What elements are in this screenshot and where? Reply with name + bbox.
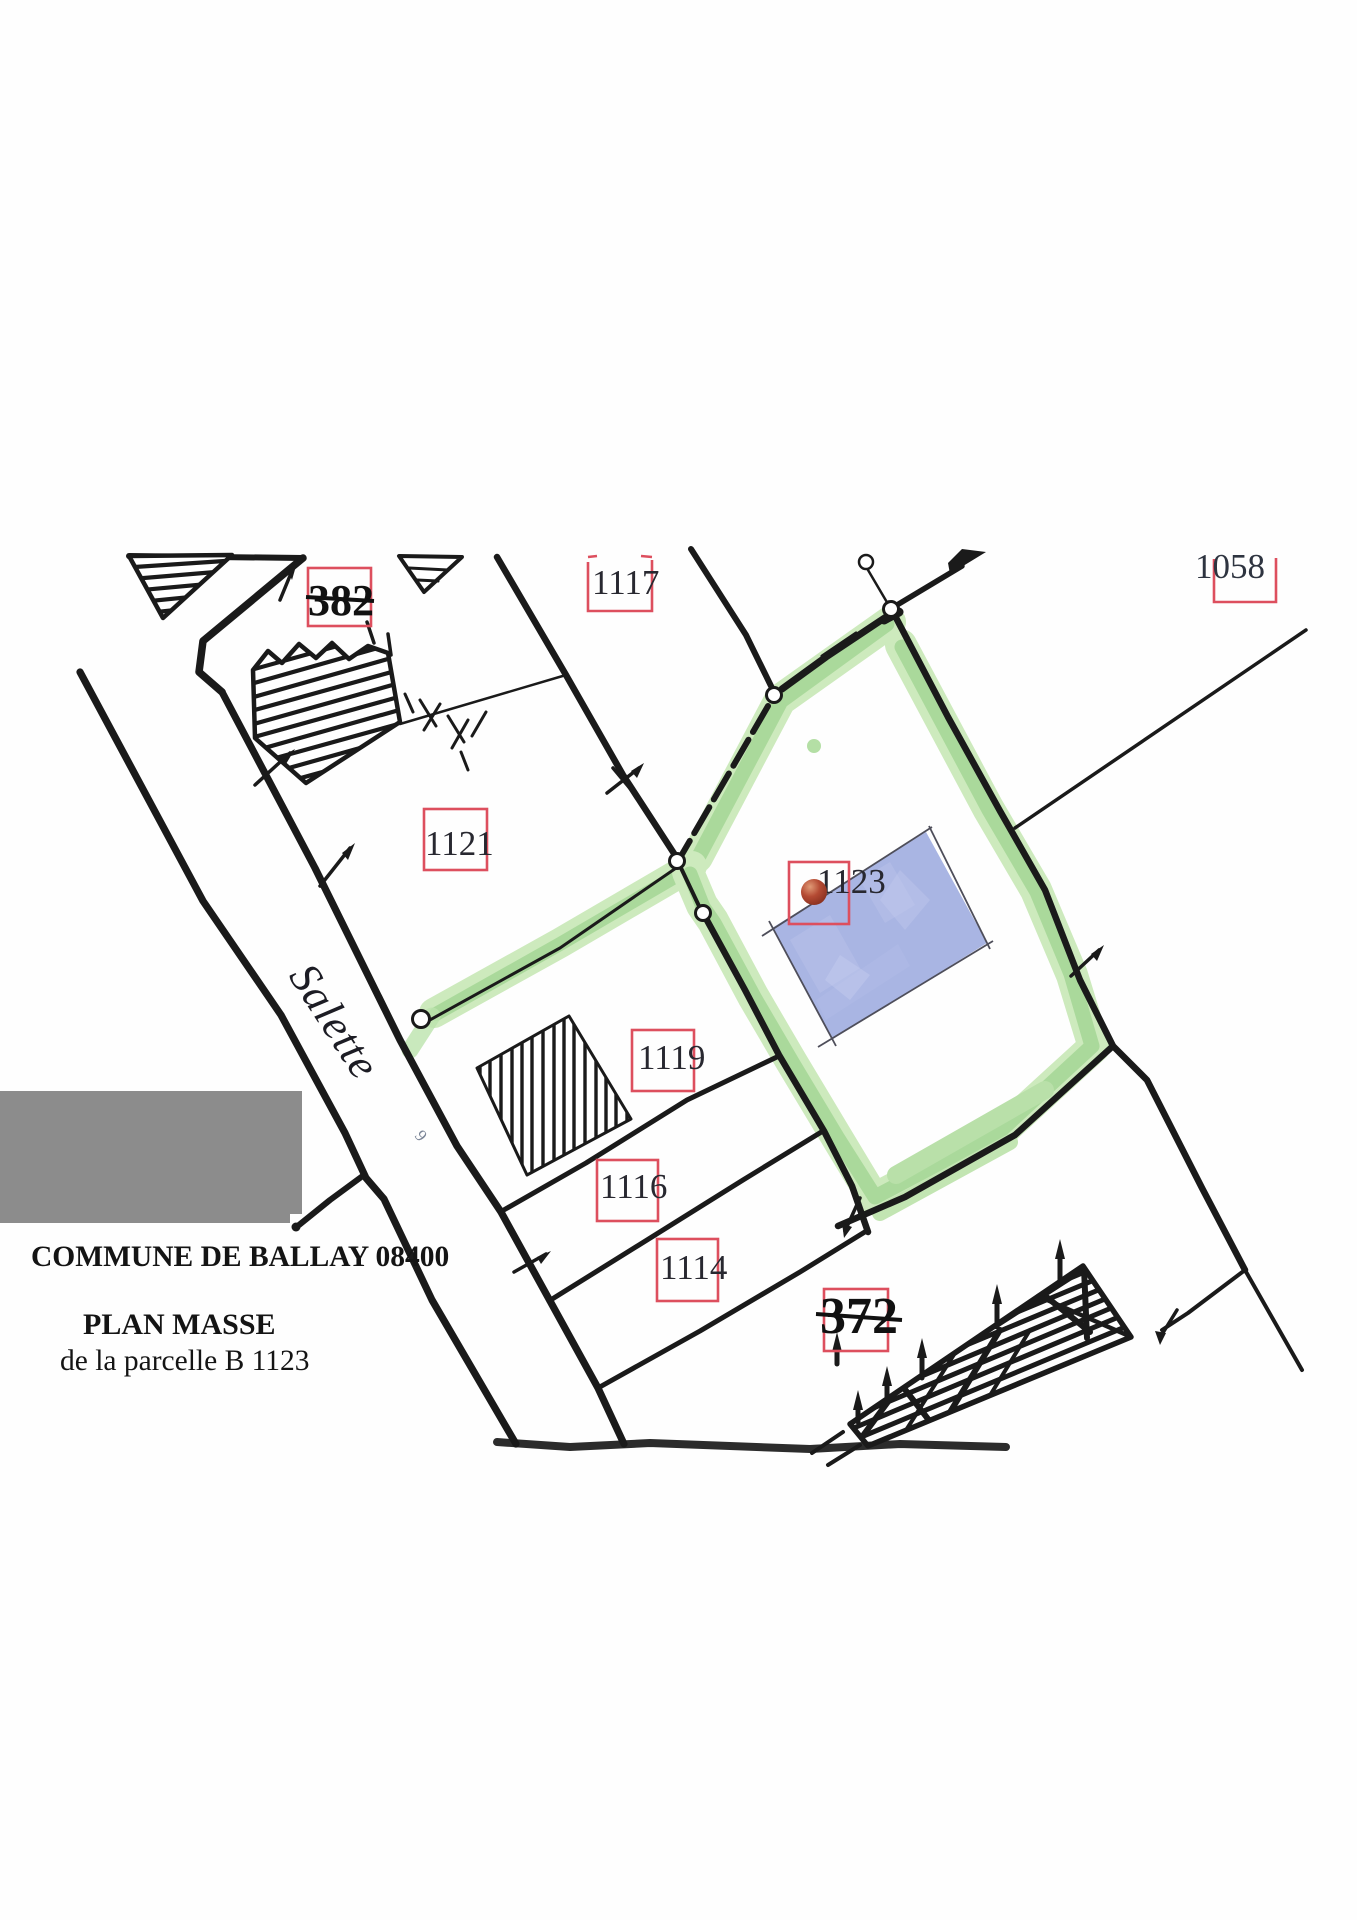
svg-text:1117: 1117 — [592, 563, 659, 602]
svg-text:1119: 1119 — [638, 1038, 705, 1077]
svg-text:1114: 1114 — [660, 1248, 727, 1287]
svg-text:de la parcelle B 1123: de la parcelle B 1123 — [60, 1345, 310, 1377]
svg-text:1058: 1058 — [1195, 547, 1265, 586]
svg-text:1123: 1123 — [817, 862, 886, 901]
svg-text:PLAN MASSE: PLAN MASSE — [83, 1308, 276, 1341]
svg-text:1121: 1121 — [425, 824, 494, 863]
svg-text:COMMUNE DE BALLAY 08400: COMMUNE DE BALLAY 08400 — [31, 1241, 449, 1273]
svg-text:1116: 1116 — [600, 1167, 667, 1206]
